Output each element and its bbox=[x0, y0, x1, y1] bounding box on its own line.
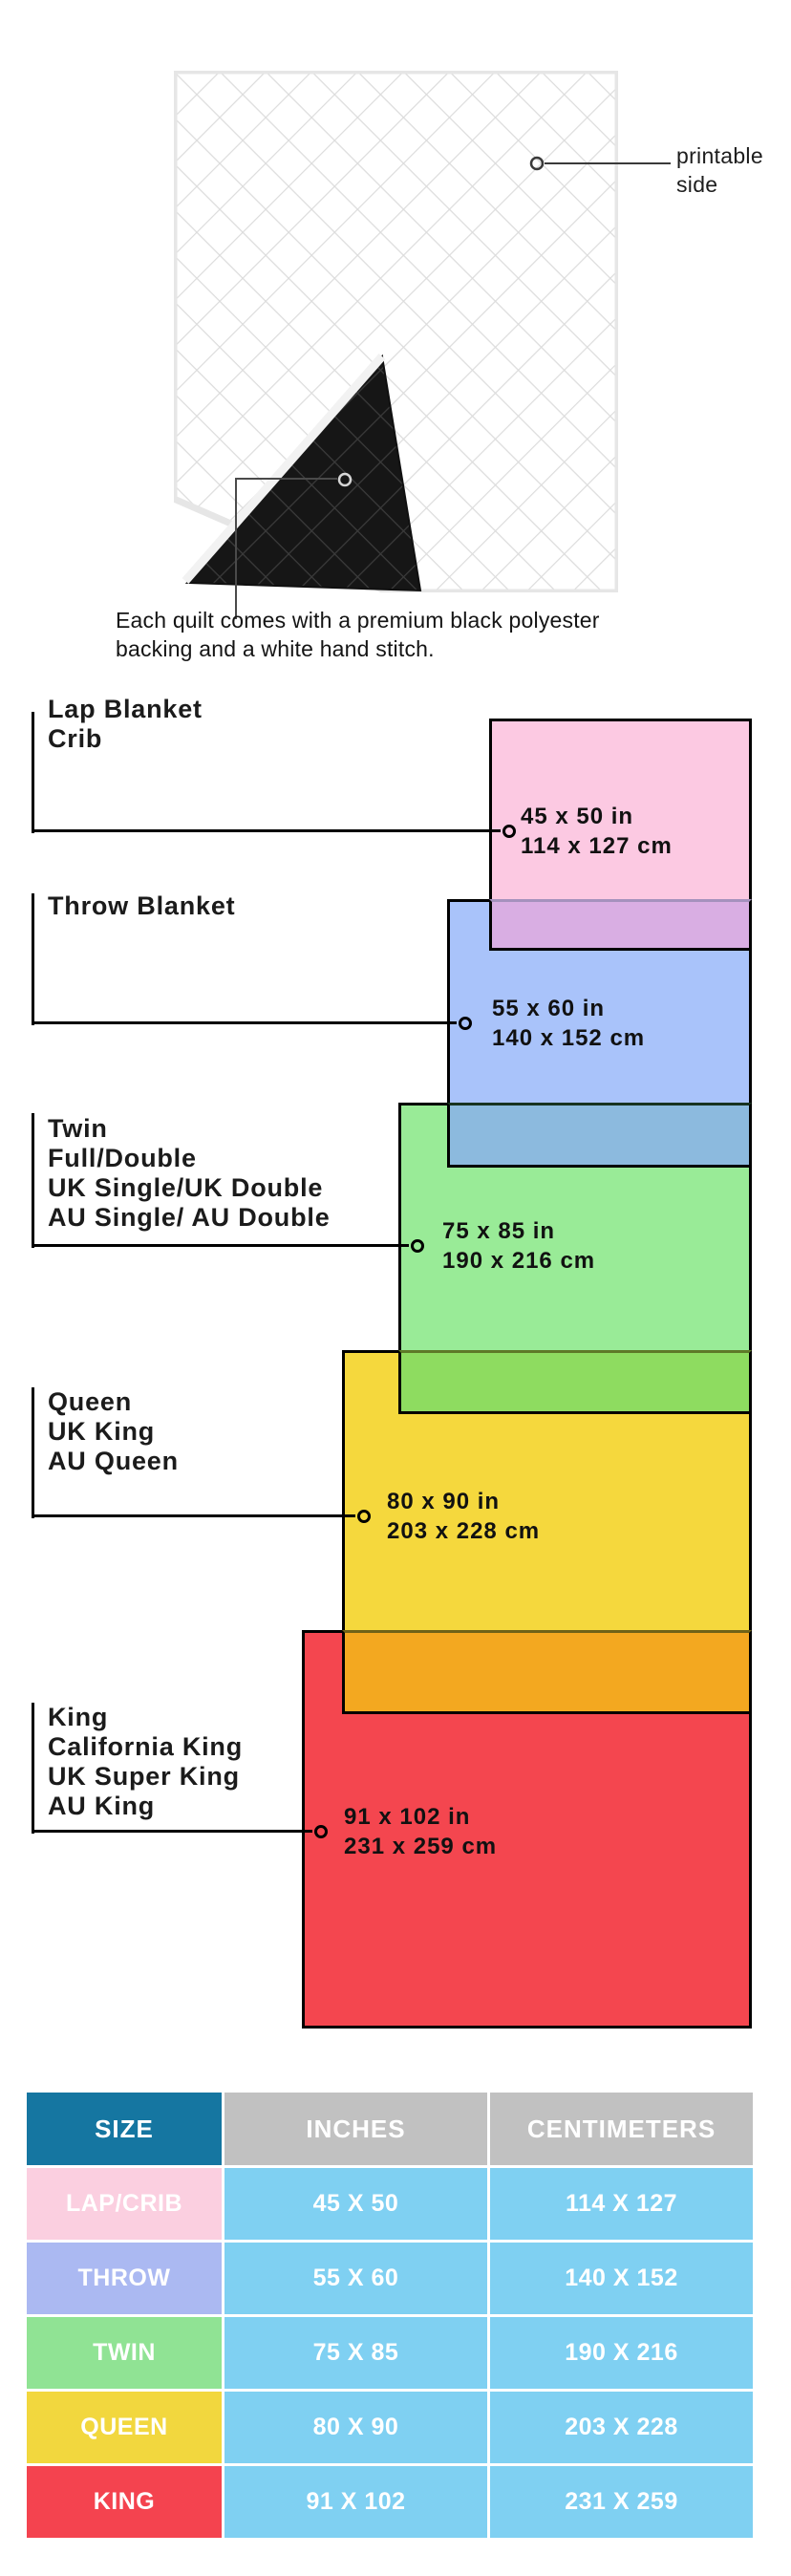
row-inches-cell: 80 X 90 bbox=[224, 2392, 487, 2463]
callout-rail-king bbox=[32, 1703, 34, 1834]
size-label-queen: QueenUK KingAU Queen bbox=[48, 1387, 179, 1476]
callout-line-throw bbox=[32, 1021, 457, 1024]
quilt-size-guide-page: printable side Each quilt comes with a p… bbox=[0, 0, 791, 2576]
size-label-line: UK Super King bbox=[48, 1762, 243, 1792]
size-dims-lap: 45 x 50 in114 x 127 cm bbox=[521, 802, 673, 861]
size-label-twin: TwinFull/DoubleUK Single/UK DoubleAU Sin… bbox=[48, 1114, 331, 1233]
dims-cm: 114 x 127 cm bbox=[521, 831, 673, 861]
size-label-line: Throw Blanket bbox=[48, 891, 235, 921]
size-overlap-king bbox=[342, 1630, 752, 1714]
size-dims-twin: 75 x 85 in190 x 216 cm bbox=[442, 1216, 595, 1276]
quilt-caption: Each quilt comes with a premium black po… bbox=[116, 606, 616, 663]
dims-inches: 91 x 102 in bbox=[344, 1802, 497, 1832]
size-label-line: UK King bbox=[48, 1417, 179, 1447]
dims-cm: 203 x 228 cm bbox=[387, 1516, 540, 1546]
size-label-line: Twin bbox=[48, 1114, 331, 1144]
row-label-cell: THROW bbox=[27, 2243, 222, 2314]
row-inches-cell: 55 X 60 bbox=[224, 2243, 487, 2314]
callout-dot-twin bbox=[411, 1239, 424, 1253]
dims-inches: 45 x 50 in bbox=[521, 802, 673, 831]
dims-inches: 55 x 60 in bbox=[492, 994, 645, 1023]
table-row: KING91 X 102231 X 259 bbox=[27, 2466, 753, 2538]
dims-inches: 75 x 85 in bbox=[442, 1216, 595, 1246]
row-label-cell: KING bbox=[27, 2466, 222, 2538]
size-label-line: AU King bbox=[48, 1792, 243, 1821]
table-header-size: SIZE bbox=[27, 2093, 222, 2165]
table-header-row: SIZEINCHESCENTIMETERS bbox=[27, 2093, 753, 2165]
size-table: SIZEINCHESCENTIMETERSLAP/CRIB45 X 50114 … bbox=[27, 2093, 753, 2541]
row-inches-cell: 45 X 50 bbox=[224, 2168, 487, 2240]
row-centimeters-cell: 114 X 127 bbox=[490, 2168, 753, 2240]
callout-dot-queen bbox=[357, 1510, 371, 1523]
table-row: LAP/CRIB45 X 50114 X 127 bbox=[27, 2168, 753, 2240]
table-row: QUEEN80 X 90203 X 228 bbox=[27, 2392, 753, 2463]
callout-rail-twin bbox=[32, 1113, 34, 1248]
size-label-line: AU Queen bbox=[48, 1447, 179, 1476]
callout-line-queen bbox=[32, 1514, 355, 1517]
callout-dot-king bbox=[314, 1825, 328, 1838]
callout-line-twin bbox=[32, 1244, 409, 1247]
row-label-cell: LAP/CRIB bbox=[27, 2168, 222, 2240]
row-inches-cell: 75 X 85 bbox=[224, 2317, 487, 2389]
size-dims-king: 91 x 102 in231 x 259 cm bbox=[344, 1802, 497, 1861]
size-overlap-twin bbox=[447, 1103, 752, 1168]
size-label-line: Crib bbox=[48, 724, 203, 754]
size-label-lap: Lap BlanketCrib bbox=[48, 695, 203, 754]
callout-rail-queen bbox=[32, 1387, 34, 1518]
quilt-illustration bbox=[174, 71, 618, 592]
table-header-inches: INCHES bbox=[224, 2093, 487, 2165]
row-centimeters-cell: 203 X 228 bbox=[490, 2392, 753, 2463]
callout-dot-throw bbox=[459, 1017, 472, 1030]
size-label-line: UK Single/UK Double bbox=[48, 1173, 331, 1203]
size-label-line: King bbox=[48, 1703, 243, 1732]
row-inches-cell: 91 X 102 bbox=[224, 2466, 487, 2538]
size-label-line: Full/Double bbox=[48, 1144, 331, 1173]
callout-rail-throw bbox=[32, 893, 34, 1025]
row-label-cell: TWIN bbox=[27, 2317, 222, 2389]
row-centimeters-cell: 231 X 259 bbox=[490, 2466, 753, 2538]
size-label-line: Lap Blanket bbox=[48, 695, 203, 724]
row-centimeters-cell: 140 X 152 bbox=[490, 2243, 753, 2314]
size-label-throw: Throw Blanket bbox=[48, 891, 235, 921]
table-header-centimeters: CENTIMETERS bbox=[490, 2093, 753, 2165]
size-label-line: California King bbox=[48, 1732, 243, 1762]
size-label-line: Queen bbox=[48, 1387, 179, 1417]
dims-cm: 231 x 259 cm bbox=[344, 1832, 497, 1861]
size-overlap-queen bbox=[398, 1350, 752, 1414]
dims-cm: 190 x 216 cm bbox=[442, 1246, 595, 1276]
row-label-cell: QUEEN bbox=[27, 2392, 222, 2463]
size-overlap-throw bbox=[489, 899, 752, 951]
callout-line-king bbox=[32, 1830, 312, 1833]
size-dims-queen: 80 x 90 in203 x 228 cm bbox=[387, 1487, 540, 1546]
callout-dot-lap bbox=[502, 825, 516, 838]
size-label-king: KingCalifornia KingUK Super KingAU King bbox=[48, 1703, 243, 1821]
size-label-line: AU Single/ AU Double bbox=[48, 1203, 331, 1233]
callout-rail-lap bbox=[32, 712, 34, 833]
row-centimeters-cell: 190 X 216 bbox=[490, 2317, 753, 2389]
dims-inches: 80 x 90 in bbox=[387, 1487, 540, 1516]
table-row: THROW55 X 60140 X 152 bbox=[27, 2243, 753, 2314]
dims-cm: 140 x 152 cm bbox=[492, 1023, 645, 1053]
size-dims-throw: 55 x 60 in140 x 152 cm bbox=[492, 994, 645, 1053]
printable-side-label: printable side bbox=[676, 141, 783, 199]
table-row: TWIN75 X 85190 X 216 bbox=[27, 2317, 753, 2389]
callout-line-lap bbox=[32, 829, 501, 832]
